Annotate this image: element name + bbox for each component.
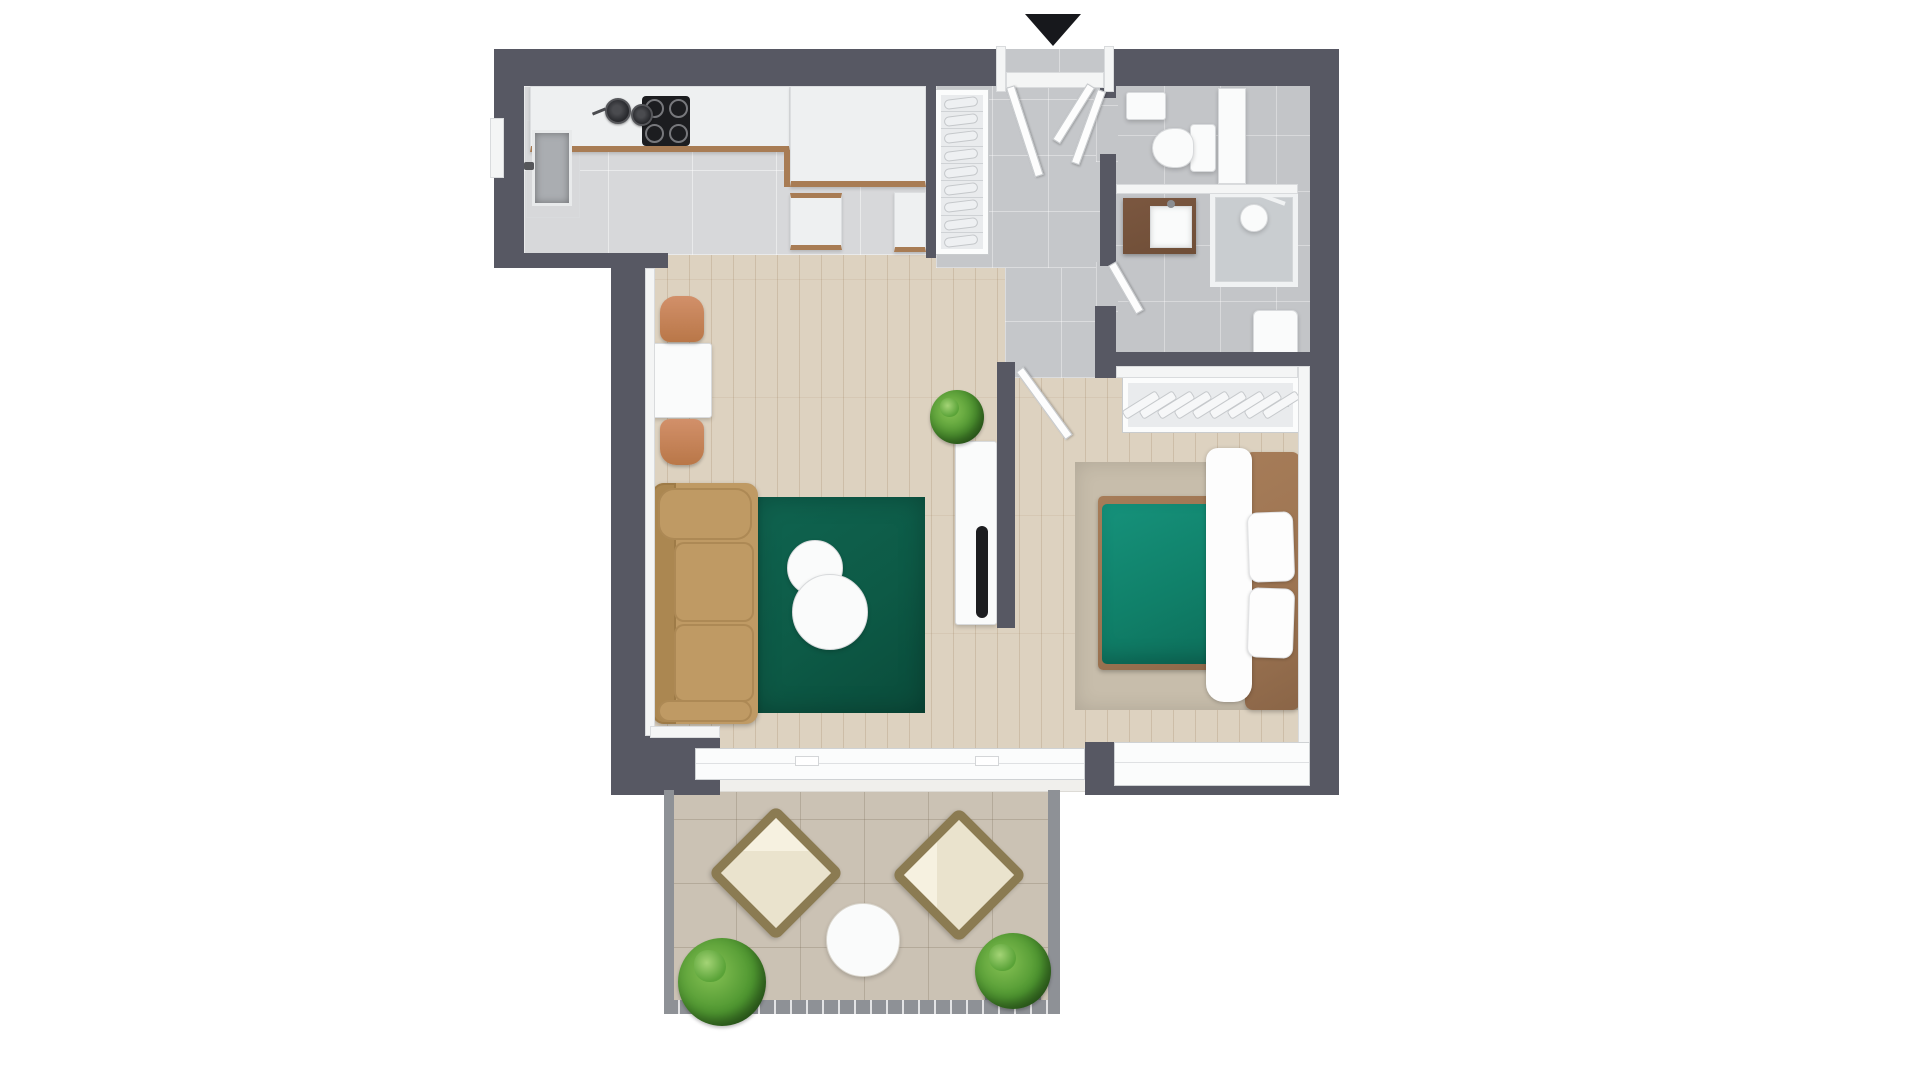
lining-bottom-corner	[650, 726, 720, 738]
wall-left-living	[611, 253, 645, 745]
shoe-shelf	[941, 164, 983, 181]
toilet-bowl	[1152, 128, 1194, 168]
shoe-pair-icon	[944, 217, 979, 231]
dining-table	[652, 343, 712, 418]
sofa-armrest-bottom	[658, 700, 752, 722]
shoe-pair-icon	[944, 182, 979, 196]
wardrobe-open-hangers	[1123, 378, 1298, 432]
floor-plan	[0, 0, 1920, 1080]
sofa-seat-cushion-2	[674, 624, 754, 702]
wall-partial-living-bedroom	[997, 362, 1015, 628]
sofa-seat-cushion-1	[674, 542, 754, 622]
shower-head-icon	[1240, 204, 1268, 232]
terrace-plant-left	[678, 938, 766, 1026]
wall-pier-bottom	[1085, 742, 1114, 795]
wall-bath-left-upper	[1100, 192, 1116, 266]
entrance-jamb-left	[996, 46, 1006, 92]
wall-top-right	[1107, 49, 1339, 86]
lining-right-wall	[1298, 366, 1310, 746]
left-wall-window	[490, 118, 504, 178]
kitchen-counter-right	[790, 86, 926, 187]
lining-left-living	[645, 268, 655, 736]
terrace-railing-left	[664, 790, 674, 1012]
bathroom-faucet-icon	[1167, 200, 1175, 208]
cooking-pot	[605, 98, 631, 124]
kitchen-island-cabinet	[790, 193, 842, 250]
bedroom-window	[1114, 742, 1310, 786]
shoe-pair-icon	[944, 199, 979, 213]
kitchen-lower-cabinet	[894, 192, 926, 252]
kitchen-sink	[532, 130, 572, 206]
wall-wc-left-lower	[1100, 154, 1116, 192]
hallway-floor-extension	[1005, 268, 1098, 378]
shoe-pair-icon	[944, 113, 979, 127]
cooktop-burner-icon	[669, 124, 688, 143]
terrace-round-table	[826, 903, 900, 977]
shoe-pair-icon	[944, 165, 979, 179]
shoe-shelf	[941, 147, 983, 164]
cooktop-burner-icon	[645, 124, 664, 143]
shoe-shelf	[941, 198, 983, 215]
coffee-table-large	[792, 574, 868, 650]
sliding-door-handle-tab-1	[795, 756, 819, 766]
shoe-pair-icon	[944, 148, 979, 162]
living-room-sliding-door	[695, 748, 1085, 780]
cooktop-burner-icon	[669, 99, 688, 118]
bed-pillow-1	[1247, 511, 1295, 583]
dining-chair-bottom	[660, 419, 704, 465]
living-room-plant-icon	[930, 390, 984, 444]
entrance-jamb-right	[1104, 46, 1114, 92]
tv	[976, 526, 988, 618]
lining-bedroom-top	[1116, 366, 1298, 378]
terrace-sill	[668, 778, 1088, 792]
wc-wall-cabinet	[1126, 92, 1166, 120]
wall-top-left	[494, 49, 1003, 86]
shoe-rack	[936, 90, 988, 254]
bed-sheet	[1206, 448, 1252, 702]
sofa-armrest-top	[658, 488, 752, 540]
shoe-shelf	[941, 129, 983, 146]
entrance-arrow-icon	[1025, 14, 1081, 46]
cooking-pan	[631, 104, 653, 126]
shoe-shelf	[941, 95, 983, 112]
lining-wc-bath-divider	[1116, 184, 1298, 194]
wall-kitchen-hallway	[926, 86, 936, 258]
sink-faucet-icon	[524, 162, 534, 170]
dining-chair-top	[660, 296, 704, 342]
bathroom-sink	[1150, 206, 1192, 248]
shoe-pair-icon	[944, 130, 979, 144]
shoe-pair-icon	[944, 234, 979, 248]
counter-edge-strip	[784, 150, 790, 187]
shoe-pair-icon	[944, 96, 979, 110]
wc-tall-cabinet	[1218, 88, 1246, 184]
shoe-shelf	[941, 233, 983, 249]
shoe-shelf	[941, 112, 983, 129]
terrace-plant-right	[975, 933, 1051, 1009]
shoe-shelf	[941, 216, 983, 233]
shoe-shelf	[941, 181, 983, 198]
wall-right	[1310, 49, 1339, 795]
sliding-door-handle-tab-2	[975, 756, 999, 766]
bed-pillow-2	[1247, 587, 1295, 659]
